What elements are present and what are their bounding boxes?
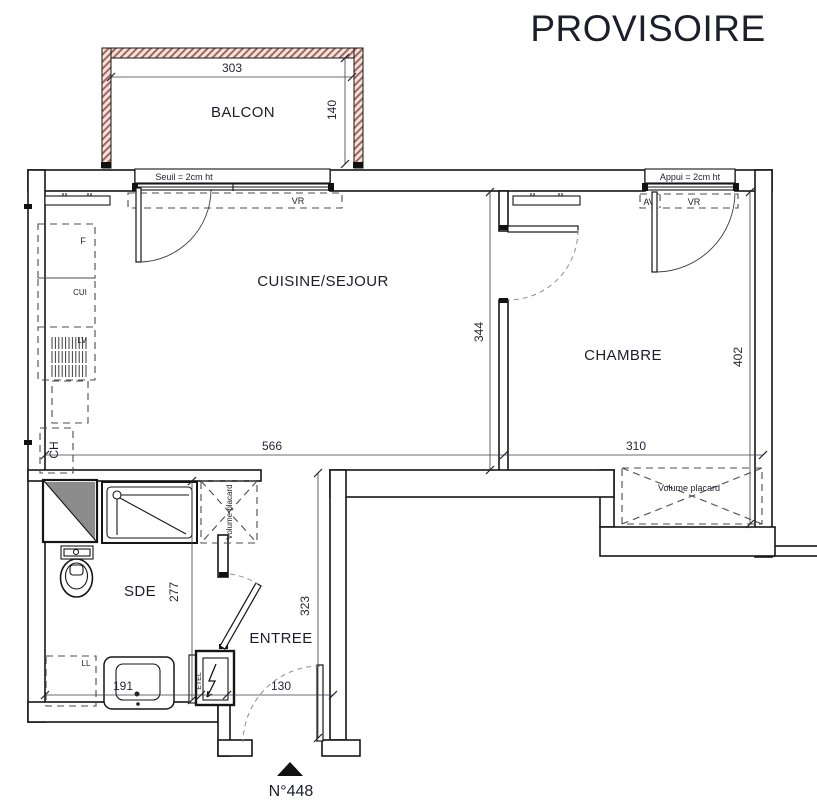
toilet [61, 546, 94, 597]
door-balcony-cuisine-swing [141, 189, 211, 262]
room-label-sde: SDE [124, 583, 156, 600]
wall-chambre-bottom [600, 527, 775, 556]
floor-plan-drawing: PROVISOIRE 303 140 BALCON [0, 0, 817, 800]
dim-room-widths: 566 310 [41, 439, 767, 459]
chambre-placard-label: Volume placard [658, 483, 720, 493]
vanity-unit [43, 480, 97, 542]
dim-chambre-depth-label: 402 [731, 347, 745, 367]
wall-right [755, 170, 772, 557]
wall-left [28, 170, 45, 722]
shower-tray [102, 482, 197, 543]
unit-number-label: N°448 [269, 783, 314, 800]
door-sde-jamb-top [219, 572, 228, 577]
fridge-label: F [80, 236, 86, 246]
room-label-cuisine-sejour: CUISINE/SEJOUR [257, 273, 388, 290]
door-balcony-cuisine [136, 188, 211, 262]
sde-placard-label: Volume placard [225, 484, 234, 539]
electrical-panel-label: ETEL [196, 672, 203, 690]
window-chambre-jamb-right [733, 183, 739, 191]
entrance-marker: N°448 [269, 762, 314, 800]
room-label-entree: ENTREE [249, 630, 312, 647]
dim-balcony-depth-label: 140 [325, 100, 339, 120]
dishwasher-label: LV [77, 336, 87, 345]
door-chambre-leaf [508, 226, 578, 232]
door-sde-swing [230, 574, 258, 584]
wall-top-center [330, 170, 645, 191]
door-chambre-jamb-top [499, 225, 508, 230]
dim-balcony-width-label: 303 [222, 61, 242, 75]
room-label-chambre: CHAMBRE [584, 347, 662, 364]
window-cuisine-vr-label: VR [292, 196, 305, 206]
radiator-cuisine [45, 193, 110, 205]
door-entrance-swing [243, 666, 320, 742]
window-cuisine-sill-label: Seuil = 2cm ht [155, 172, 213, 182]
window-cuisine: Seuil = 2cm ht VR [128, 169, 342, 208]
cooker-box [38, 278, 95, 327]
balcony-rail-cap-left [101, 162, 111, 168]
sde-placard: Volume placard [201, 481, 257, 543]
electrical-panel: ETEL [196, 651, 234, 705]
dim-sejour-depth: 344 [472, 188, 494, 474]
door-balcony-chambre-leaf [652, 192, 657, 272]
wall-sde-partition [218, 535, 228, 577]
balcony-rail-left [102, 48, 111, 168]
balcony-rail-top [102, 48, 363, 58]
kitchen-units: F CUI LV CH [38, 224, 95, 473]
dim-sde-width-label: 191 [113, 679, 133, 693]
wall-marker-lower [24, 440, 32, 445]
dim-entree-depth-label: 323 [298, 596, 312, 616]
chambre-placard: Volume placard [622, 468, 762, 524]
door-chambre-swing [508, 230, 578, 300]
cooker-label: CUI [73, 288, 87, 297]
dim-entree-depth: 323 [298, 469, 322, 742]
dim-entree-width-label: 130 [271, 679, 291, 693]
dishwasher-hatch-3 [50, 365, 88, 377]
dim-balcony-depth: 140 [325, 54, 349, 168]
washbasin-dot [136, 702, 140, 706]
wall-corridor-vertical [330, 470, 346, 740]
plan-title: PROVISOIRE [530, 8, 765, 49]
dishwasher-hatch-2 [50, 351, 88, 363]
washing-machine: LL [46, 656, 96, 706]
wall-niche-right-cap [322, 740, 360, 756]
dim-sejour-depth-label: 344 [472, 322, 486, 342]
radiator-chambre [513, 193, 580, 205]
balcony: 303 140 BALCON [101, 48, 363, 168]
wall-niche-bottom-left [218, 740, 252, 756]
wall-partition-chambre-lower [499, 300, 508, 473]
dim-sejour-width-label: 566 [262, 439, 282, 453]
door-entrance [243, 665, 323, 742]
water-heater-label: CH [47, 441, 61, 458]
dim-chambre-width-label: 310 [626, 439, 646, 453]
window-chambre-jamb-left [642, 183, 648, 191]
kitchen-unit-box [52, 381, 88, 423]
door-chambre [499, 225, 578, 303]
balcony-rail-cap-right [353, 162, 363, 168]
room-label-balcon: BALCON [211, 104, 275, 121]
dim-chambre-depth: 402 [731, 188, 754, 528]
entrance-triangle-icon [277, 762, 303, 776]
balcony-rail-right [354, 48, 363, 168]
window-chambre-vr-label: VR [688, 197, 701, 207]
dim-balcony-width: 303 [107, 61, 356, 81]
window-cuisine-vr-box [128, 193, 342, 208]
washbasin-drain [135, 692, 140, 697]
window-chambre-sill-label: Appui = 2cm ht [660, 172, 721, 182]
wall-marker-upper [24, 204, 32, 209]
floor-plan-page: PROVISOIRE 303 140 BALCON [0, 0, 817, 800]
dim-sde-depth-label: 277 [167, 582, 181, 602]
wall-right-stub [772, 546, 817, 556]
door-chambre-jamb-bottom [499, 298, 508, 303]
wall-corridor-top [330, 470, 614, 497]
door-balcony-cuisine-leaf [136, 188, 141, 262]
window-cuisine-jamb-right [328, 183, 334, 191]
washing-machine-label: LL [82, 659, 91, 668]
fridge-box [38, 224, 95, 278]
